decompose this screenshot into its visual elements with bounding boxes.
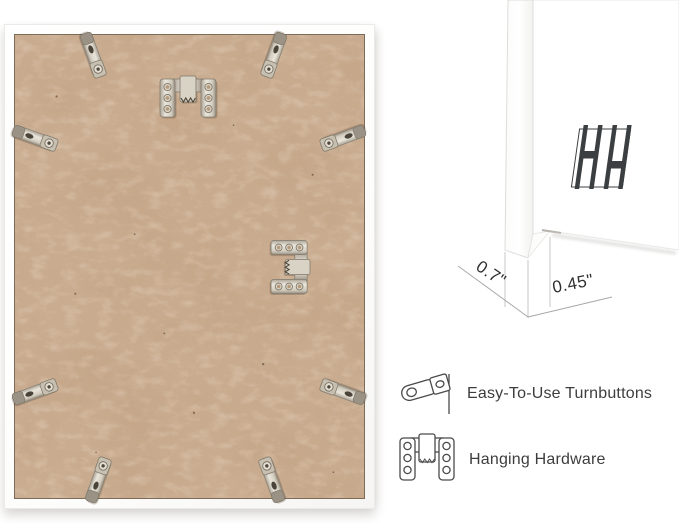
face-dimension-label: 0.45" [551,270,595,297]
product-infographic: 0.7" 0.45" Easy-To-Use Turnbuttons [0,0,679,523]
frame-front-face [533,0,679,250]
legend-item-hanging-hardware: Hanging Hardware [398,432,456,484]
turnbutton-icon [396,368,460,418]
turnbutton [259,29,288,78]
hardware-layer [5,25,376,510]
frame-back [4,24,375,509]
legend-item-turnbuttons: Easy-To-Use Turnbuttons [396,368,460,418]
turnbutton [319,123,368,152]
hanging-hardware [270,240,310,295]
turnbutton [10,378,59,407]
turnbutton [9,124,58,153]
hanging-hardware-icon [398,432,456,484]
frame-profile-diagram: 0.7" 0.45" [400,0,679,340]
legend-label: Easy-To-Use Turnbuttons [467,385,652,403]
turnbutton [84,456,113,505]
turnbutton [78,30,107,79]
depth-dimension-label: 0.7" [473,257,510,290]
hanging-hardware [160,76,218,119]
turnbutton [258,456,287,505]
turnbutton [319,377,368,406]
frame-side-face [505,0,533,258]
legend-label: Hanging Hardware [469,451,606,469]
